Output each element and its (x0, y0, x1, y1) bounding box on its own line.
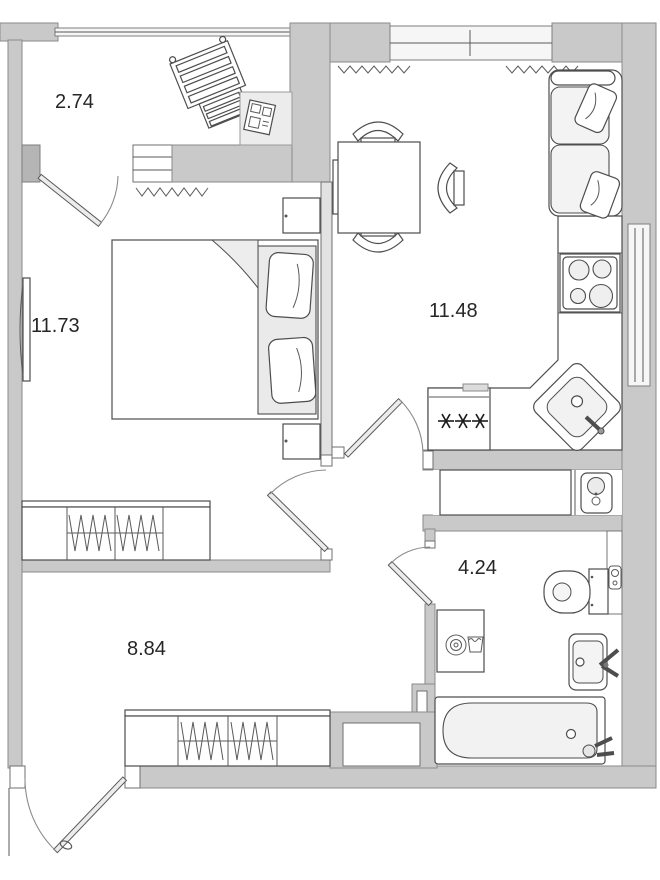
kitchen-radiator-left (338, 66, 410, 73)
kitchen-door-leaf (345, 399, 403, 457)
kitchen-door-right-jamb (423, 451, 433, 469)
bathroom-area-label: 4.24 (458, 557, 497, 579)
pipe-shaft (607, 531, 622, 614)
bathroom-door-leaf (388, 562, 432, 606)
table-top (338, 142, 420, 233)
wall-bedroom-kitchen (321, 182, 332, 466)
washbasin (569, 634, 618, 690)
bedroom-radiator (136, 188, 208, 196)
toilet (544, 569, 608, 614)
hallway: 8.84 (9, 638, 330, 856)
entry-door-right-jamb (125, 766, 140, 788)
kitchen-area-label: 11.48 (429, 300, 478, 322)
pillow (268, 337, 316, 404)
balcony-door-leaf (38, 174, 101, 226)
tea-tray (244, 100, 276, 135)
tub-drain (567, 730, 576, 739)
kitchen-door (345, 399, 423, 457)
kitchen-door-left-jamb (332, 447, 344, 458)
hall-cabinet (440, 470, 571, 515)
floor-plan-drawing: 2.74 (0, 0, 660, 880)
bedroom-door (268, 470, 329, 551)
hall-corner-niche (343, 723, 420, 766)
utility-nook (433, 470, 622, 515)
kitchen-living-room: 11.48 (333, 66, 624, 457)
wall-balcony-kitchen (290, 23, 330, 182)
wall-balcony-bedroom (172, 145, 292, 182)
bathroom-step-notch (417, 691, 427, 712)
entry-door-left-jamb (10, 766, 25, 788)
water-heater (581, 473, 612, 513)
bedroom-door-leaf (268, 492, 329, 552)
nightstand-top (283, 198, 320, 233)
wall-bottom (125, 766, 656, 788)
wall-bathroom-stub (425, 529, 435, 541)
balcony-window-sill (133, 145, 172, 182)
floor-plan: 2.74 (0, 0, 660, 880)
balcony-door-arc (100, 176, 118, 224)
bed (112, 240, 318, 419)
balcony: 2.74 (38, 35, 292, 226)
wall-bedroom-hallway (22, 560, 330, 572)
stove (560, 254, 620, 312)
wall-kitchen-bottom (423, 450, 622, 470)
chair (438, 163, 464, 213)
wall-top-left-block (0, 23, 58, 41)
wall-left (8, 40, 22, 768)
bedroom-area-label: 11.73 (31, 315, 80, 337)
nightstand-bottom (283, 424, 320, 459)
washing-machine (437, 610, 484, 672)
bedroom-door-arc (270, 470, 326, 494)
bathroom-door (388, 547, 432, 605)
balcony-door-jamb-block (22, 145, 40, 182)
dining-table (333, 122, 464, 252)
wall-right (622, 23, 656, 788)
pillow (266, 252, 314, 319)
bedroom: 11.73 (20, 188, 328, 560)
bedroom-wardrobe (22, 501, 210, 560)
balcony-door (38, 174, 118, 226)
fridge-hinge-tab (463, 384, 488, 391)
bedroom-door-top-jamb (321, 455, 332, 466)
bathroom-door-arc (390, 547, 430, 564)
refrigerator (428, 384, 490, 450)
wall-top-segment-left (330, 23, 390, 62)
sofa (549, 70, 622, 220)
sofa-armrest (551, 71, 615, 85)
kitchen-door-arc (400, 400, 423, 453)
hallway-wardrobe (125, 710, 330, 766)
entry-door-arc (25, 779, 56, 851)
balcony-area-label: 2.74 (55, 91, 94, 113)
hallway-area-label: 8.84 (127, 638, 166, 660)
wall-nook-bottom (423, 515, 622, 531)
entry-door (9, 777, 126, 856)
bathtub (435, 697, 614, 764)
right-wall-window (628, 224, 650, 386)
tub-faucet (583, 745, 595, 757)
bedroom-door-bottom-jamb (321, 549, 332, 560)
